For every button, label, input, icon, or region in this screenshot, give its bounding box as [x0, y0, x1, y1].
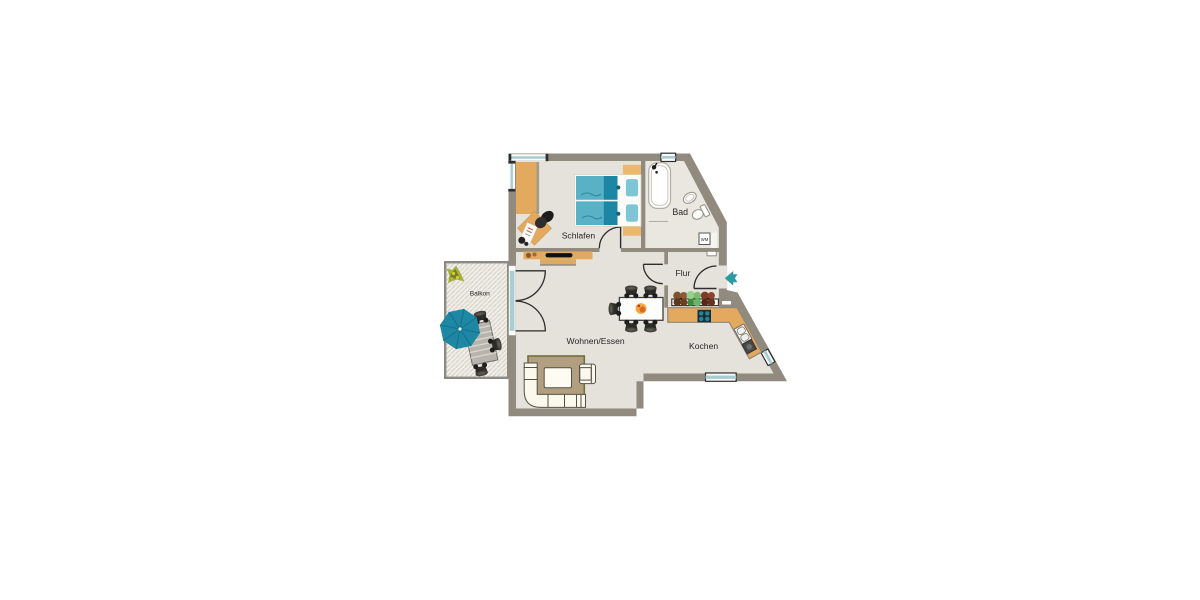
svg-text:Kochen: Kochen [689, 341, 718, 351]
svg-text:Balkon: Balkon [470, 290, 490, 297]
svg-text:Schlafen: Schlafen [562, 230, 596, 240]
svg-text:Wohnen/Essen: Wohnen/Essen [567, 336, 625, 346]
svg-text:Flur: Flur [676, 268, 691, 278]
svg-text:Bad: Bad [672, 207, 688, 217]
svg-text:WM: WM [701, 237, 709, 242]
